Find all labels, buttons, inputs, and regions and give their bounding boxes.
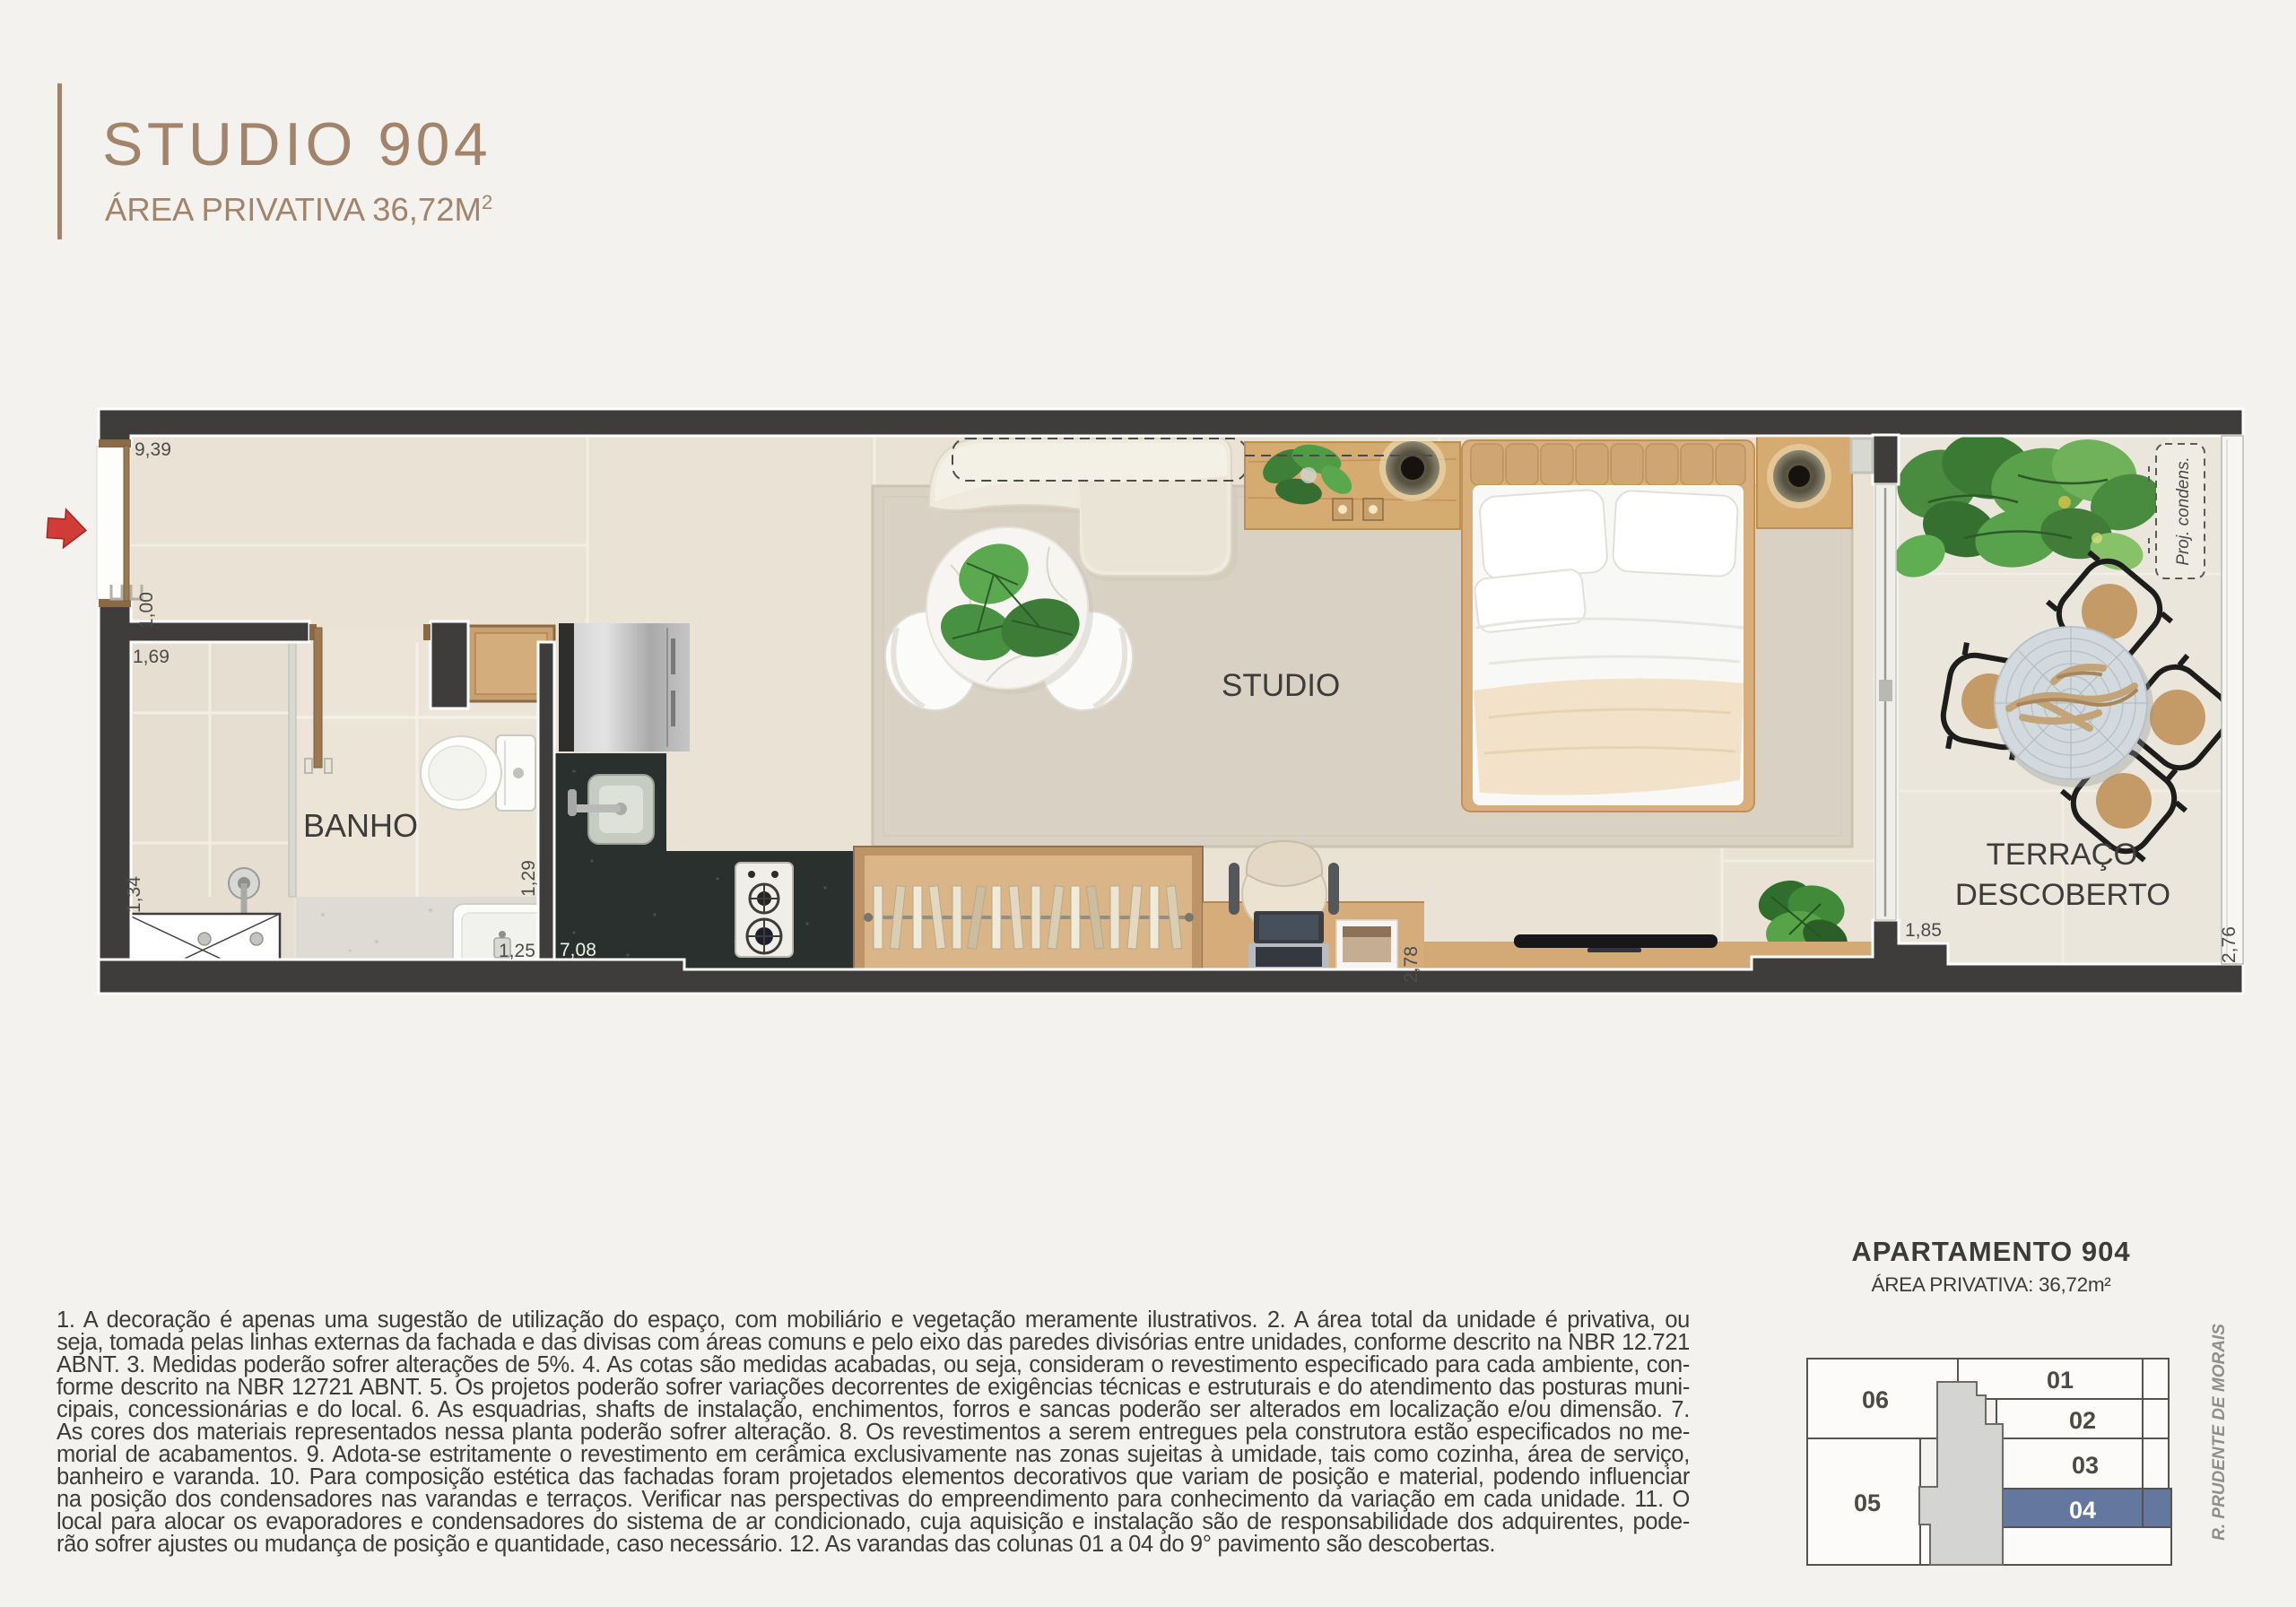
svg-text:03: 03	[2072, 1452, 2099, 1479]
svg-text:06: 06	[1862, 1386, 1889, 1413]
svg-text:R. PRUDENTE DE MORAIS: R. PRUDENTE DE MORAIS	[2210, 1324, 2229, 1541]
svg-text:04: 04	[2069, 1497, 2096, 1524]
svg-text:01: 01	[2047, 1367, 2074, 1394]
svg-text:02: 02	[2069, 1407, 2096, 1434]
svg-text:05: 05	[1854, 1490, 1881, 1516]
